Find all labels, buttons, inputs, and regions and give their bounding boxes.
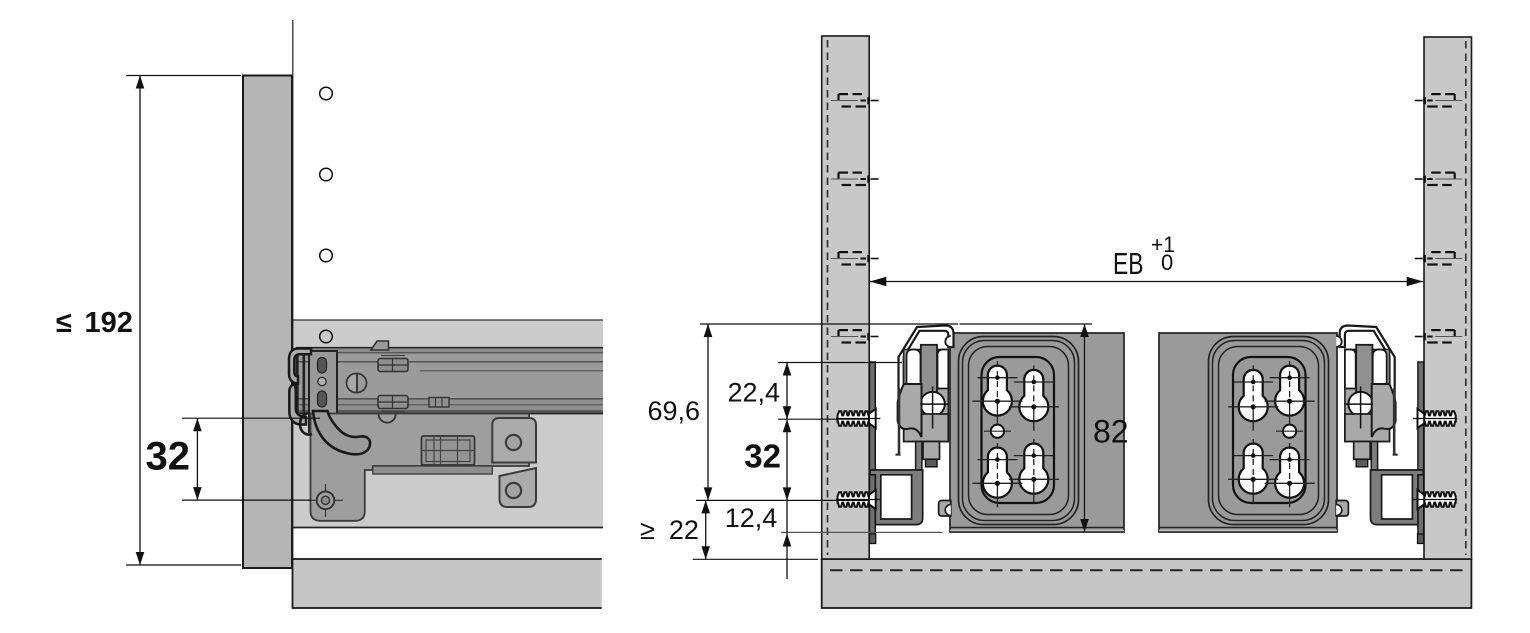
svg-text:22: 22 [669,515,699,545]
svg-text:69,6: 69,6 [647,396,700,426]
svg-text:22,4: 22,4 [727,378,780,408]
svg-text:EB: EB [1113,246,1144,281]
svg-text:32: 32 [146,434,191,478]
svg-text:192: 192 [85,307,133,339]
svg-text:≤: ≤ [56,307,72,339]
svg-text:0: 0 [1161,250,1173,275]
svg-text:32: 32 [744,438,781,475]
svg-text:12,4: 12,4 [725,503,778,533]
svg-text:82: 82 [1093,414,1129,450]
svg-text:≥: ≥ [640,515,655,545]
